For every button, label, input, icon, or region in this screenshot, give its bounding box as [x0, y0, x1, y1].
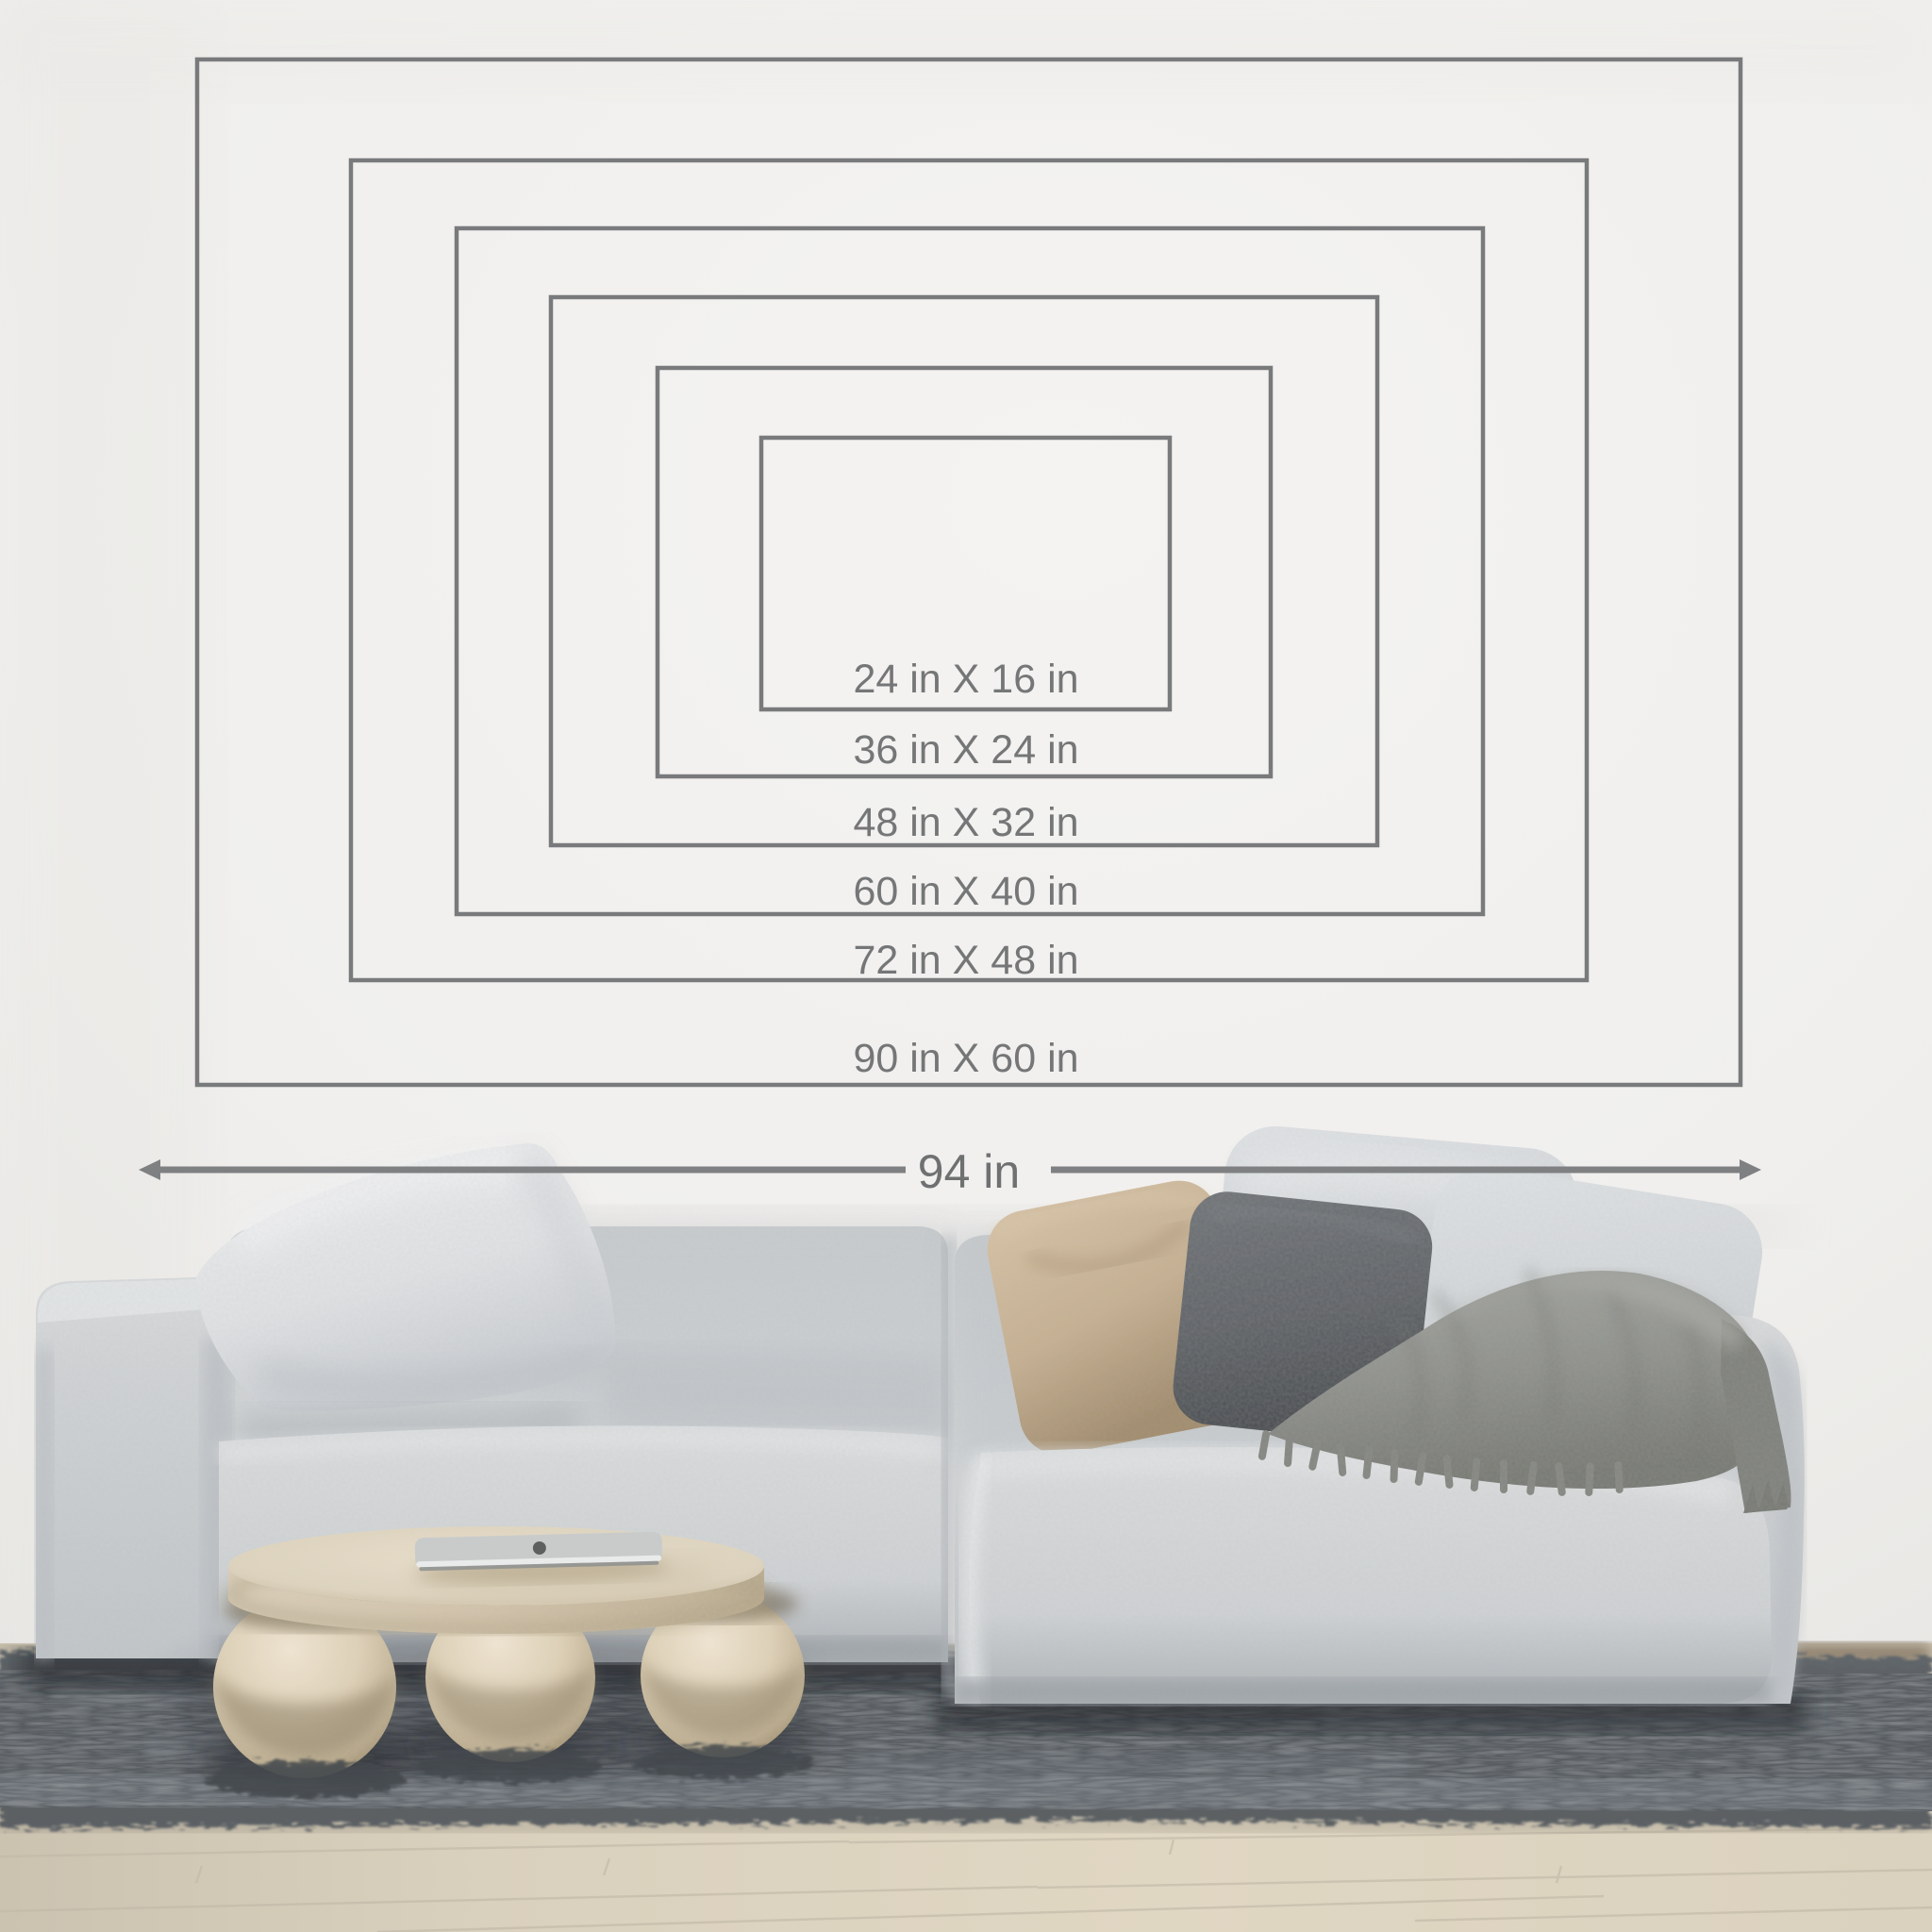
svg-text:36 in X 24 in: 36 in X 24 in: [853, 727, 1078, 773]
svg-text:72 in X 48 in: 72 in X 48 in: [853, 938, 1078, 983]
svg-text:90 in X 60 in: 90 in X 60 in: [853, 1036, 1078, 1081]
svg-text:24 in X 16 in: 24 in X 16 in: [853, 657, 1078, 702]
svg-text:48 in X 32 in: 48 in X 32 in: [853, 800, 1078, 845]
svg-text:60 in X 40 in: 60 in X 40 in: [853, 869, 1078, 914]
svg-text:94 in: 94 in: [918, 1145, 1020, 1198]
